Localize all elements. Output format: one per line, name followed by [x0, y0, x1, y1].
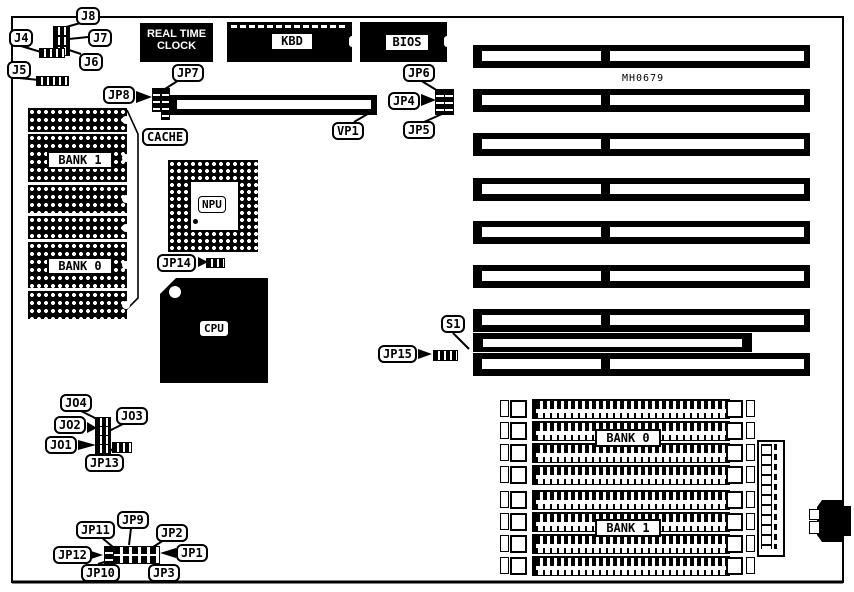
power-pin-column	[761, 444, 772, 549]
simm-bank0-label: BANK 0	[595, 429, 661, 447]
power-connector	[757, 440, 785, 557]
dip-bank1-label: BANK 1	[47, 151, 113, 169]
callout-jp2: JP2	[156, 524, 188, 542]
slot-opening	[482, 315, 601, 325]
simm-contacts	[532, 534, 730, 554]
callout-tail-jp9	[129, 528, 131, 545]
simm-clip	[726, 557, 743, 575]
callout-tail-s1	[453, 333, 469, 349]
callout-jp13: JP13	[85, 454, 124, 472]
simm-endcap	[500, 466, 509, 483]
callout-jp15: JP15	[378, 345, 417, 363]
simm-endcap	[746, 444, 755, 461]
npu-socket: NPU	[168, 160, 258, 252]
simm-contacts	[532, 399, 730, 419]
simm-endcap	[746, 466, 755, 483]
isa-slot-1	[473, 45, 810, 68]
jumper-jp8-column	[152, 88, 161, 112]
slot-opening	[610, 271, 804, 281]
simm-clip	[726, 422, 743, 440]
cpu-label: CPU	[199, 320, 229, 337]
isa-slot-7	[473, 309, 810, 332]
simm-clip	[726, 400, 743, 418]
rtc-chip: REAL TIME CLOCK	[140, 23, 213, 62]
simm-clip	[726, 466, 743, 484]
simm-endcap	[500, 557, 509, 574]
callout-jp12: JP12	[53, 546, 92, 564]
npu-socket-cavity: NPU	[191, 182, 238, 230]
callout-jp10: JP10	[81, 564, 120, 582]
simm-clip	[510, 491, 527, 509]
slot-opening	[482, 51, 601, 61]
callout-jp11: JP11	[76, 521, 115, 539]
callout-j5: J5	[7, 61, 31, 79]
callout-jp1: JP1	[176, 544, 208, 562]
callout-arrow-jo1	[78, 440, 96, 450]
isa-slot-8	[473, 353, 810, 376]
power-dash-column	[774, 444, 777, 549]
simm-endcap	[500, 422, 509, 439]
callout-j4: J4	[9, 29, 33, 47]
rtc-label-line1: REAL TIME	[140, 28, 213, 40]
bios-label: BIOS	[386, 35, 428, 50]
simm-endcap	[500, 400, 509, 417]
kbd-chip-notch	[349, 36, 354, 47]
callout-arrow-jp1	[160, 548, 176, 558]
simm-endcap	[500, 535, 509, 552]
callout-jo1: JO1	[45, 436, 77, 454]
npu-pin1-dot	[193, 219, 198, 224]
jumper-jp7-column	[161, 88, 170, 120]
cache-dip-row	[28, 108, 127, 132]
jumper-jp13	[112, 442, 132, 453]
cache-dip-row	[28, 185, 127, 213]
simm-endcap	[746, 557, 755, 574]
simm-clip	[510, 513, 527, 531]
slot-opening	[482, 227, 601, 237]
chip-notch	[122, 195, 130, 203]
jumper-jp4-column-b	[444, 89, 454, 115]
simm-contacts	[532, 465, 730, 485]
jumper-j5	[36, 76, 69, 86]
simm-clip	[510, 466, 527, 484]
callout-arrow-jp8	[136, 91, 152, 103]
chip-notch	[122, 224, 130, 232]
simm-endcap	[746, 400, 755, 417]
callout-s1: S1	[441, 315, 465, 333]
keyboard-pin-block	[809, 509, 820, 520]
simm-socket	[500, 490, 753, 507]
callout-jo3: JO3	[116, 407, 148, 425]
simm-bank1-label: BANK 1	[595, 519, 661, 537]
board-model-text: MH0679	[622, 73, 664, 84]
slot-opening	[610, 315, 804, 325]
slot-opening	[610, 51, 804, 61]
slot-opening	[610, 184, 804, 194]
callout-j7: J7	[88, 29, 112, 47]
callout-arrow-jp4	[421, 94, 436, 106]
chip-notch	[122, 154, 130, 162]
jumper-j7	[53, 36, 70, 46]
vp1-slot	[170, 95, 377, 115]
kbd-chip: KBD	[227, 22, 352, 62]
callout-jp3: JP3	[148, 564, 180, 582]
jumper-jo1	[95, 444, 111, 454]
simm-clip	[726, 535, 743, 553]
motherboard-diagram: J8 J7 J6 J4 J5 REAL TIME CLOCK KBD BIOS …	[0, 0, 854, 592]
dip-bank0-label: BANK 0	[47, 257, 113, 275]
isa-slot-4	[473, 178, 810, 201]
callout-jp7: JP7	[172, 64, 204, 82]
npu-label: NPU	[198, 196, 226, 213]
simm-endcap	[500, 513, 509, 530]
kbd-label: KBD	[272, 34, 312, 49]
slot-opening	[610, 95, 804, 105]
callout-tail-j7	[69, 37, 88, 39]
jumper-jp14	[206, 258, 225, 268]
jumper-jp-row	[113, 546, 160, 564]
simm-endcap	[500, 491, 509, 508]
simm-contacts	[532, 490, 730, 510]
callout-jo4: JO4	[60, 394, 92, 412]
slot-opening	[482, 184, 601, 194]
cache-dip-row	[28, 291, 127, 319]
jumper-jp15	[433, 350, 458, 361]
simm-contacts	[532, 556, 730, 576]
simm-clip	[510, 557, 527, 575]
jumper-j4	[39, 48, 65, 58]
cpu-chip: CPU	[160, 278, 268, 383]
simm-endcap	[500, 444, 509, 461]
kbd-chip-dashes	[231, 25, 348, 28]
simm-endcap	[746, 513, 755, 530]
callout-jp8: JP8	[103, 86, 135, 104]
simm-clip	[510, 422, 527, 440]
callout-jp4: JP4	[388, 92, 420, 110]
bios-chip: BIOS	[360, 22, 447, 62]
vp1-slot-opening	[177, 100, 371, 109]
simm-clip	[726, 513, 743, 531]
slot-opening	[610, 359, 804, 369]
isa-slot-5	[473, 221, 810, 244]
cache-dip-row	[28, 216, 127, 239]
slot-opening	[483, 339, 742, 347]
callout-jp9: JP9	[117, 511, 149, 529]
callout-arrow-jp15	[418, 349, 432, 359]
keyboard-connector	[817, 500, 851, 542]
isa-slot-short	[473, 333, 752, 352]
simm-clip	[510, 444, 527, 462]
simm-socket	[500, 556, 753, 573]
isa-slot-6	[473, 265, 810, 288]
callout-jo2: JO2	[54, 416, 86, 434]
simm-clip	[510, 400, 527, 418]
callout-j6: J6	[79, 53, 103, 71]
simm-socket	[500, 465, 753, 482]
callout-jp6: JP6	[403, 64, 435, 82]
rtc-label-line2: CLOCK	[140, 40, 213, 52]
chip-notch	[122, 261, 130, 269]
callout-vp1: VP1	[332, 122, 364, 140]
slot-opening	[482, 139, 601, 149]
simm-clip	[510, 535, 527, 553]
cpu-pin1-dot	[169, 286, 181, 298]
bios-chip-notch	[444, 36, 449, 47]
isa-slot-3	[473, 133, 810, 156]
slot-opening	[482, 95, 601, 105]
isa-slot-2	[473, 89, 810, 112]
callout-jp14: JP14	[157, 254, 196, 272]
slot-opening	[482, 271, 601, 281]
keyboard-pin-block	[809, 521, 820, 534]
simm-endcap	[746, 422, 755, 439]
slot-opening	[610, 139, 804, 149]
simm-clip	[726, 444, 743, 462]
simm-endcap	[746, 491, 755, 508]
callout-cache: CACHE	[142, 128, 188, 146]
simm-socket	[500, 399, 753, 416]
callout-jp5: JP5	[403, 121, 435, 139]
slot-opening	[610, 227, 804, 237]
jumper-j8	[53, 26, 70, 36]
callout-tail-jo3	[109, 424, 123, 431]
simm-clip	[726, 491, 743, 509]
simm-endcap	[746, 535, 755, 552]
chip-notch	[122, 301, 130, 309]
chip-notch	[122, 116, 130, 124]
callout-j8: J8	[76, 7, 100, 25]
slot-opening	[482, 359, 601, 369]
